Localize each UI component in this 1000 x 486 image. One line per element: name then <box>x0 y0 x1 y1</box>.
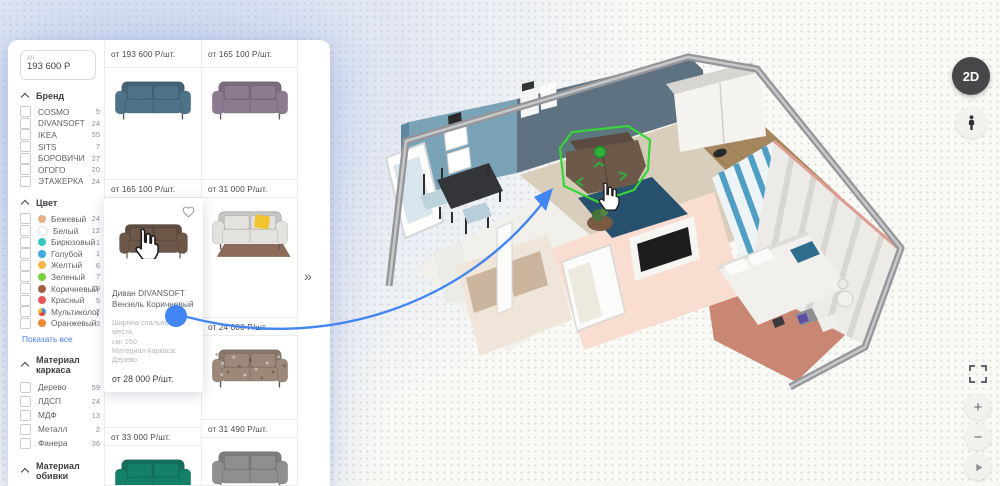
checkbox[interactable] <box>20 295 31 306</box>
product-card[interactable] <box>105 68 201 180</box>
checkbox[interactable] <box>20 271 31 282</box>
filter-option-label: ЛДСП <box>38 396 61 406</box>
filter-option-count: 24 <box>92 214 100 223</box>
filter-option[interactable]: Голубой1 <box>20 248 104 260</box>
filter-option-count: 24 <box>92 177 100 186</box>
brand-filter-list: COSMO5DIVANSOFT24IKEA55SITS7БОРОВИЧИ27ОГ… <box>20 106 104 187</box>
play-icon <box>972 461 985 474</box>
checkbox[interactable] <box>20 248 31 259</box>
filter-option-count: 20 <box>92 165 100 174</box>
product-name-line1: Диван DIVANSOFT <box>112 288 195 299</box>
product-price[interactable]: от 31 490 Р/шт. <box>202 420 297 438</box>
minus-icon: − <box>974 429 983 446</box>
filter-option-label: COSMO <box>38 107 69 117</box>
plus-icon: + <box>974 399 983 416</box>
filter-option-count: 7 <box>96 272 100 281</box>
filter-option[interactable]: Мультиколор2 <box>20 306 104 318</box>
checkbox[interactable] <box>20 318 31 329</box>
filter-option-label: Дерево <box>38 382 66 392</box>
color-dot <box>38 238 46 246</box>
color-dot <box>38 285 46 293</box>
filter-option[interactable]: Зеленый7 <box>20 271 104 283</box>
checkbox[interactable] <box>20 438 31 449</box>
filter-option-count: 24 <box>92 397 100 406</box>
filter-option-count: 5 <box>96 107 100 116</box>
frame-material-filter-list: Дерево59ЛДСП24МДФ13Металл2Фанера36 <box>20 380 104 450</box>
checkbox[interactable] <box>20 424 31 435</box>
product-column-2: от 165 100 Р/шт.от 31 000 Р/шт.от 24 000… <box>201 40 298 486</box>
filter-option-count: 2 <box>96 425 100 434</box>
checkbox[interactable] <box>20 225 31 236</box>
filter-option[interactable]: IKEA55 <box>20 129 104 141</box>
collapse-chevron-icon <box>21 200 29 208</box>
color-dot <box>38 319 46 327</box>
color-dot <box>38 261 46 269</box>
product-card[interactable] <box>202 198 297 318</box>
filter-option[interactable]: МДФ13 <box>20 408 104 422</box>
filter-option-label: ЭТАЖЕРКА <box>38 176 83 186</box>
checkbox[interactable] <box>20 153 31 164</box>
fullscreen-icon <box>966 362 990 386</box>
filter-option-count: 27 <box>92 154 100 163</box>
product-price[interactable]: от 165 100 Р/шт. <box>105 180 201 198</box>
product-spec: см: 150 <box>112 337 195 346</box>
filter-option[interactable]: Фанера36 <box>20 436 104 450</box>
zoom-out-button[interactable]: − <box>965 424 991 450</box>
color-dot <box>38 296 46 304</box>
filter-option-label: Зеленый <box>51 272 85 282</box>
filter-option[interactable]: ОГОГО20 <box>20 164 104 176</box>
color-dot <box>38 215 46 223</box>
filter-option-label: IKEA <box>38 130 57 140</box>
filter-option[interactable]: Металл2 <box>20 422 104 436</box>
product-price[interactable]: от 24 000 Р/шт. <box>202 318 297 336</box>
checkbox[interactable] <box>20 260 31 271</box>
filter-option-label: Металл <box>38 424 67 434</box>
product-spec: Дерево <box>112 355 195 364</box>
filter-option[interactable]: Коричневый19 <box>20 283 104 295</box>
product-card[interactable] <box>202 438 297 486</box>
product-card[interactable] <box>202 336 297 420</box>
checkbox[interactable] <box>20 283 31 294</box>
filter-option[interactable]: DIVANSOFT24 <box>20 118 104 130</box>
filter-option[interactable]: ЛДСП24 <box>20 394 104 408</box>
checkbox[interactable] <box>20 106 31 117</box>
filter-option[interactable]: Оранжевый3 <box>20 318 104 330</box>
product-spec: Материал каркаса: <box>112 346 195 355</box>
filter-option-count: 6 <box>96 261 100 270</box>
color-filter-list: Бежевый24Белый12Бирюзовый1Голубой1Желтый… <box>20 213 104 329</box>
filter-option-count: 36 <box>92 439 100 448</box>
view-mode-2d-button[interactable]: 2D <box>952 57 990 95</box>
filter-option-count: 24 <box>92 119 100 128</box>
filter-option[interactable]: COSMO5 <box>20 106 104 118</box>
filter-option-count: 55 <box>92 130 100 139</box>
checkbox[interactable] <box>20 176 31 187</box>
color-dot <box>38 250 46 258</box>
filter-option-count: 3 <box>96 319 100 328</box>
filter-option-label: Фанера <box>38 438 67 448</box>
filters-column: до 193 600 Р Бренд COSMO5DIVANSOFT24IKEA… <box>8 40 104 486</box>
checkbox[interactable] <box>20 237 31 248</box>
filter-option-label: Желтый <box>51 260 82 270</box>
show-all-link[interactable]: Показать все <box>22 334 104 344</box>
filter-option[interactable]: SITS7 <box>20 141 104 153</box>
filter-option-count: 7 <box>96 142 100 151</box>
filter-section-upholstery[interactable]: Материал обивки <box>22 461 104 481</box>
play-button[interactable] <box>965 454 991 480</box>
filter-option-count: 13 <box>92 411 100 420</box>
checkbox[interactable] <box>20 129 31 140</box>
hand-cursor-icon <box>134 228 161 264</box>
color-dot <box>38 273 46 281</box>
filter-option[interactable]: Бирюзовый1 <box>20 236 104 248</box>
color-dot <box>38 226 48 236</box>
collapse-chevron-icon <box>21 93 29 101</box>
filter-option-count: 12 <box>92 226 100 235</box>
collapse-chevron-icon <box>21 362 29 370</box>
checkbox[interactable] <box>20 306 31 317</box>
price-input-value: 193 600 Р <box>27 61 89 73</box>
product-spec: Ширина спального места, <box>112 318 195 337</box>
filter-option-count: 5 <box>96 296 100 305</box>
checkbox[interactable] <box>20 382 31 393</box>
filter-option[interactable]: Дерево59 <box>20 380 104 394</box>
product-price: от 28 000 Р/шт. <box>112 374 195 384</box>
panel-expand-chevron[interactable]: » <box>304 268 312 284</box>
filter-option-label: Голубой <box>51 249 82 259</box>
filter-option-label: Красный <box>51 295 84 305</box>
filter-option-label: Бирюзовый <box>51 237 95 247</box>
walk-mode-button[interactable] <box>956 107 987 138</box>
checkbox[interactable] <box>20 141 31 152</box>
product-name-line2: Вензель Коричневый <box>112 299 195 310</box>
filter-option-label: Мультиколор <box>51 307 99 317</box>
rotation-handle <box>595 147 606 158</box>
product-price[interactable]: от 193 600 Р/шт. <box>105 40 201 68</box>
filter-option-count: 19 <box>92 284 100 293</box>
filter-option-label: МДФ <box>38 410 57 420</box>
filter-section-frame-material[interactable]: Материал каркаса <box>22 355 104 375</box>
product-price[interactable]: от 165 100 Р/шт. <box>202 40 297 68</box>
filter-section-color[interactable]: Цвет <box>22 198 104 208</box>
view-mode-label: 2D <box>963 69 980 84</box>
side-table <box>837 291 853 307</box>
filter-option-label: DIVANSOFT <box>38 118 85 128</box>
furniture-catalog-panel: до 193 600 Р Бренд COSMO5DIVANSOFT24IKEA… <box>8 40 330 486</box>
product-price[interactable]: от 31 000 Р/шт. <box>202 180 297 198</box>
filter-option[interactable]: Красный5 <box>20 294 104 306</box>
price-input-label: до <box>27 54 89 61</box>
filter-option-count: 1 <box>96 238 100 247</box>
color-dot <box>38 308 46 316</box>
filter-option-label: Бежевый <box>51 214 86 224</box>
filter-option[interactable]: Желтый6 <box>20 260 104 272</box>
expanded-product-card[interactable]: Диван DIVANSOFT Вензель Коричневый Ширин… <box>104 198 203 392</box>
filter-option-count: 2 <box>96 307 100 316</box>
person-icon <box>964 114 979 131</box>
filter-option[interactable]: БОРОВИЧИ27 <box>20 152 104 164</box>
price-max-input[interactable]: до 193 600 Р <box>20 50 96 80</box>
filter-option-count: 1 <box>96 249 100 258</box>
filter-option-label: БОРОВИЧИ <box>38 153 85 163</box>
filter-option-label: SITS <box>38 142 56 152</box>
product-card[interactable] <box>202 68 297 180</box>
checkbox[interactable] <box>20 164 31 175</box>
zoom-in-button[interactable]: + <box>965 394 991 420</box>
filter-option[interactable]: Белый12 <box>20 225 104 237</box>
filter-section-brand[interactable]: Бренд <box>22 91 104 101</box>
filter-option[interactable]: ЭТАЖЕРКА24 <box>20 176 104 188</box>
product-card[interactable] <box>105 446 201 486</box>
filter-option-label: Белый <box>53 226 78 236</box>
filter-option-label: Оранжевый <box>51 318 96 328</box>
filter-option-count: 59 <box>92 383 100 392</box>
filter-option[interactable]: Бежевый24 <box>20 213 104 225</box>
filter-option-label: ОГОГО <box>38 165 65 175</box>
checkbox[interactable] <box>20 118 31 129</box>
checkbox[interactable] <box>20 213 31 224</box>
product-price[interactable]: от 33 000 Р/шт. <box>105 428 201 446</box>
checkbox[interactable] <box>20 410 31 421</box>
fit-screen-button[interactable] <box>966 362 990 386</box>
collapse-chevron-icon <box>21 468 29 476</box>
checkbox[interactable] <box>20 396 31 407</box>
